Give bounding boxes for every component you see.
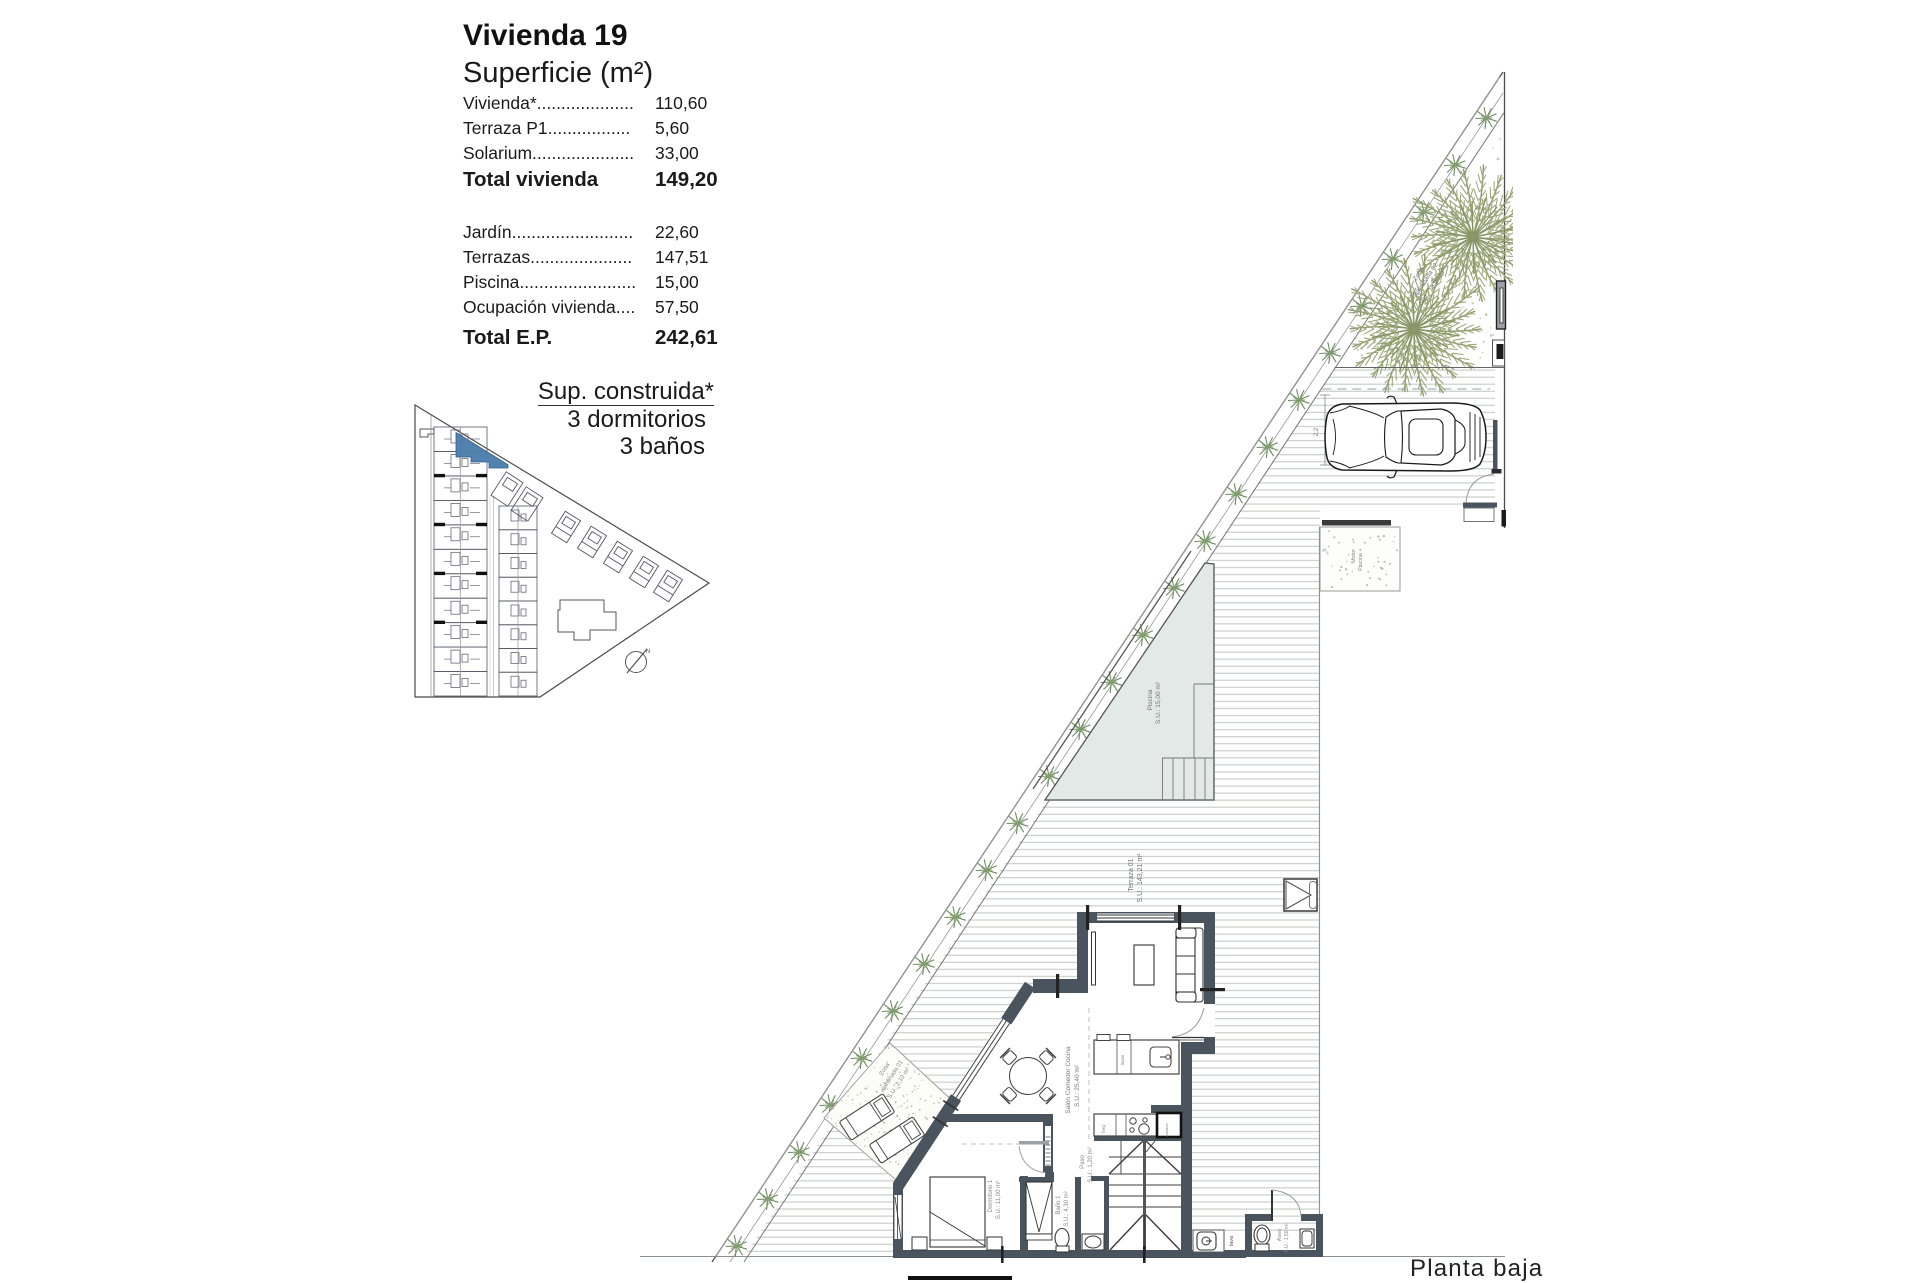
svg-text:S.U.: 1,20 m²: S.U.: 1,20 m² xyxy=(1088,1147,1094,1182)
svg-text:S.U.: 1,50 m²: S.U.: 1,50 m² xyxy=(1284,1223,1290,1253)
svg-text:Piscina: Piscina xyxy=(1147,689,1154,710)
svg-text:caldera: caldera xyxy=(1164,1123,1169,1137)
svg-text:Motor: Motor xyxy=(1351,549,1357,563)
svg-text:Baño 1: Baño 1 xyxy=(1056,1195,1062,1215)
svg-text:S.U.: 11,00 m²: S.U.: 11,00 m² xyxy=(996,1181,1002,1219)
svg-text:Dormitorio 1: Dormitorio 1 xyxy=(988,1179,994,1212)
svg-text:Terraza 01: Terraza 01 xyxy=(1128,858,1135,891)
svg-text:S.U.: 4,30 m²: S.U.: 4,30 m² xyxy=(1064,1191,1070,1226)
svg-text:Piscina: Piscina xyxy=(1358,552,1364,571)
svg-text:S.U.: 143,21 m²: S.U.: 143,21 m² xyxy=(1137,853,1144,903)
svg-text:Salón Comedor Cocina: Salón Comedor Cocina xyxy=(1065,1046,1072,1114)
svg-text:Paso: Paso xyxy=(1080,1155,1086,1169)
svg-text:S.U.: 25,40 m²: S.U.: 25,40 m² xyxy=(1074,1064,1081,1107)
svg-text:lavav: lavav xyxy=(1120,1054,1125,1065)
svg-text:freg: freg xyxy=(1101,1125,1106,1133)
svg-text:Aseo: Aseo xyxy=(1277,1229,1283,1242)
svg-text:N: N xyxy=(646,649,650,655)
svg-text:lava: lava xyxy=(1229,1235,1235,1246)
svg-text:S.U.: 15,00 m²: S.U.: 15,00 m² xyxy=(1155,681,1162,724)
svg-text:2,2: 2,2 xyxy=(1314,427,1320,436)
